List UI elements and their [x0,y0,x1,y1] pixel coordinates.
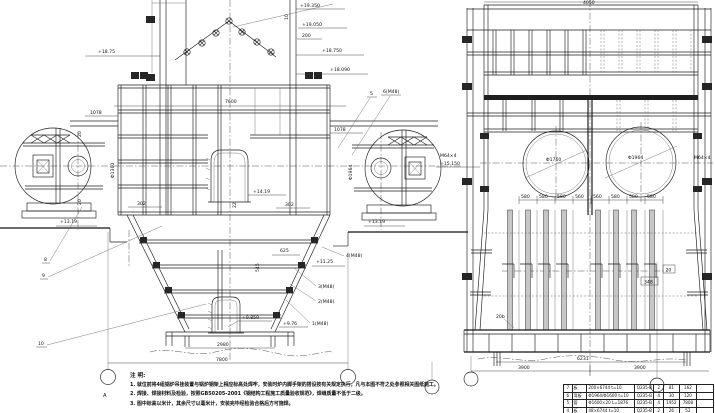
bom-unit-weight: 1952 [663,400,679,408]
chain-dim-6: 580 [629,194,638,200]
bom-material: Q235-B [635,385,654,393]
dim-label-3900-right: 3900 [634,365,646,371]
callout-1: 1(M48) [312,321,329,327]
elev-label-1125: +11.25 [316,259,333,265]
bom-total-weight: 120 [679,392,696,400]
dim-label-7800: 7800 [216,357,228,363]
bom-spec: 200×6744 t=10 [587,385,635,393]
elev-label-1875-left: +18.75 [98,49,115,55]
chain-dim-4: 560 [593,194,602,200]
dim-label-7600: 7600 [225,99,237,105]
note-line-3: 3. 图中标高以米计，其余尺寸以毫米计，安装完毕经检验合格后方可施焊。 [130,400,448,407]
bom-no: 4 [564,407,573,413]
left-mill: +13.19 [0,128,127,242]
elev-label-19050: +19.050 [302,22,322,28]
bom-name: 板 [572,407,587,413]
bom-material: Q235-B [635,400,654,408]
callout-20b: 20b [496,314,505,320]
dim-label-3900-left: 3900 [518,365,530,371]
dim-label-10: 10 [284,14,290,20]
elev-label-9859: +9.859 [242,315,259,321]
bill-of-materials: 7 板 200×6744 t=10 Q235-B 2 81 162 6 弯板 Φ… [563,384,714,413]
dim-label-2980: 2980 [217,342,229,348]
elev-label-18750: +18.750 [322,48,342,54]
bom-name: 管 [572,400,587,408]
dim-label-phi1964-left-view: Φ1964 [348,165,354,180]
bom-name: 板 [572,385,587,393]
bom-note [696,400,713,408]
callout-3: 3(M48) [318,284,335,290]
notes-title: 注 明: [130,371,448,379]
right-view-stiffeners [480,30,702,215]
dim-label-phi1964-right-view: Φ1964 [628,155,643,161]
bom-note [696,407,713,413]
bom-spec: 48×6744 t=10 [587,407,635,413]
elev-label-1319-right: +13.19 [368,219,385,225]
bom-note [696,385,713,393]
dim-chain: 580 580 580 560 560 580 580 580 [519,194,663,204]
bom-qty: 2 [654,385,664,393]
callout-6: 6(M48) [383,89,400,95]
right-mill: +13.19 [333,130,468,246]
left-view-tower [131,0,322,215]
drawing-svg: +19.350 10 +19.050 200 +18.750 +18.090 +… [0,0,715,413]
bom-row: 6 弯板 Φ1964/Φ1600 t=10 Q235-B 4 30 120 [564,392,714,400]
bom-spec: Φ1964/Φ1600 t=10 [587,392,635,400]
bom-note [696,392,713,400]
callout-9: 9 [42,273,45,279]
bom-total-weight: 7808 [679,400,696,408]
elev-label-1419: +14.19 [253,189,270,195]
hanger-strips: 348 20 20b [484,210,698,330]
callout-5: 5 [370,91,373,97]
dim-label-phi1360: Φ1360 [110,163,116,178]
notes-block: 注 明: 1. 就位前将4组锅炉吊挂装置与锅炉钢架上相应标高处焊牢，安装时炉内脚… [130,371,448,413]
left-view-top-elevations: +19.350 10 +19.050 200 +18.750 +18.090 +… [85,3,368,74]
dim-label-545: 545 [255,263,261,272]
bom-total-weight: 52 [679,407,696,413]
dim-label-20: 20 [666,268,672,274]
dim-label-302-left: 302 [137,201,146,207]
bom-total-weight: 162 [679,385,696,393]
dim-label-200: 200 [302,33,311,39]
chain-dim-1: 580 [539,194,548,200]
bom-row: 4 板 48×6744 t=10 Q235-B 2 26 52 [564,407,714,413]
right-view-openings: Φ1760 Φ1964 M64×4 +15.150 M64×4 [436,127,711,197]
callout-10: 10 [38,341,44,347]
bom-spec: Φ1600×20 L=1876 [587,400,635,408]
dim-label-20-top: 20 [77,131,83,137]
dim-label-1078-left: 1078 [90,110,102,116]
right-view-base: 6231 3900 3900 [464,210,710,375]
bolt-label-left: M64×4 [440,153,457,159]
bom-qty: 4 [654,392,664,400]
note-line-2: 2. 焊接、焊接材料及检验，按照GB50205-2001《钢结构工程施工质量验收… [130,390,448,397]
hanger-rods [175,4,333,60]
chain-dim-2: 580 [557,194,566,200]
dim-label-20-bottom: 20 [77,199,83,205]
bom-unit-weight: 30 [663,392,679,400]
dim-label-22: 22 [232,202,238,208]
elev-label-19350: +19.350 [300,3,320,9]
engineering-drawing-canvas: +19.350 10 +19.050 200 +18.750 +18.090 +… [0,0,715,413]
dim-label-302-right: 302 [285,202,294,208]
bom-qty: 4 [654,400,664,408]
bom-material: Q235-B [635,392,654,400]
bom-no: 5 [564,400,573,408]
elev-label-976: +9.76 [283,321,297,327]
bom-unit-weight: 26 [663,407,679,413]
bom-name: 弯板 [572,392,587,400]
bom-material: Q235-B [635,407,654,413]
bom-no: 7 [564,385,573,393]
dim-label-top-width: 4050 [583,0,595,6]
chain-dim-7: 580 [647,194,656,200]
bom-unit-weight: 81 [663,385,679,393]
chain-dim-0: 580 [521,194,530,200]
bom-no: 6 [564,392,573,400]
elev-label-18090: +18.090 [330,67,350,73]
note-line-1: 1. 就位前将4组锅炉吊挂装置与锅炉钢架上相应标高处焊牢，安装时炉内脚手架的搭设… [130,381,448,388]
axis-label-a: A [103,393,107,399]
bom-row: 7 板 200×6744 t=10 Q235-B 2 81 162 [564,385,714,393]
dim-label-625: 625 [280,248,289,254]
elev-label-15150: +15.150 [440,161,460,167]
dim-label-6231: 6231 [577,356,589,362]
dim-label-348: 348 [644,280,653,286]
bolt-label-right: M64×4 [694,155,711,161]
callout-4: 4(M48) [346,253,363,259]
callout-2: 2(M48) [318,299,335,305]
dim-label-1078-right: 1078 [334,127,346,133]
hopper: 2980 7800 [108,215,348,363]
bom-row: 5 管 Φ1600×20 L=1876 Q235-B 4 1952 7808 [564,400,714,408]
chain-dim-5: 580 [611,194,620,200]
centerlines [0,0,713,379]
bom-qty: 2 [654,407,664,413]
dim-label-phi1760: Φ1760 [546,157,561,163]
chain-dim-3: 560 [575,194,584,200]
turnbuckle-icons [184,18,274,55]
callout-8: 8 [44,257,47,263]
